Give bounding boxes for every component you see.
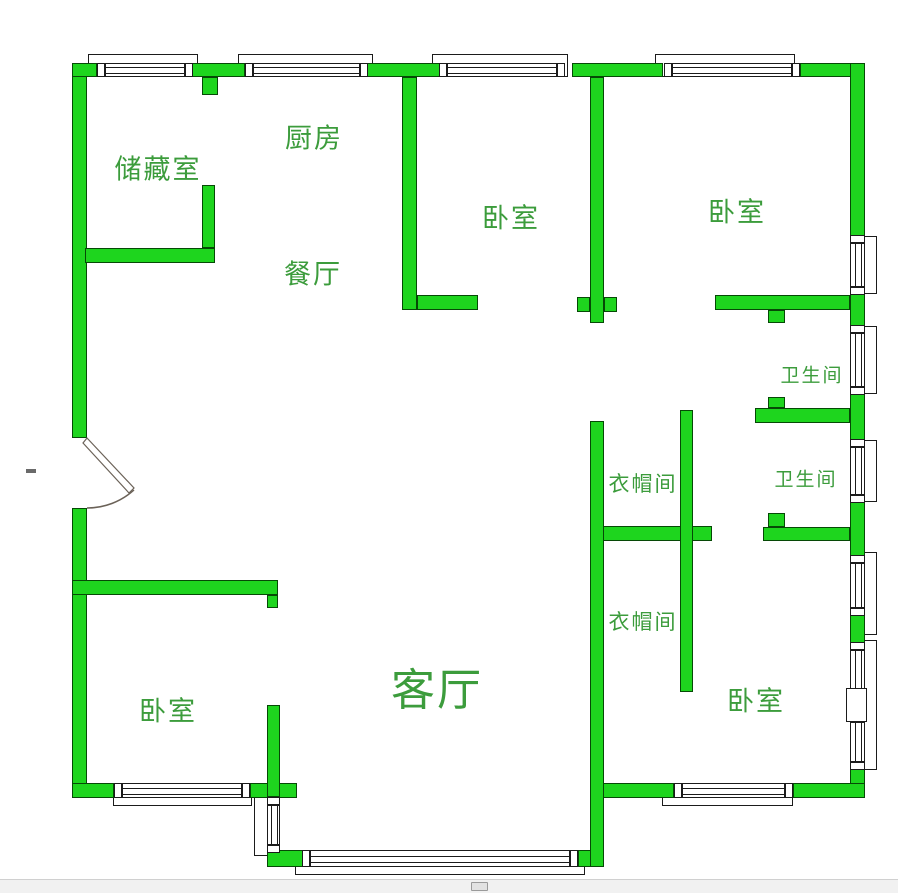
room-label-closet-lower: 衣帽间	[609, 606, 678, 636]
window	[850, 447, 865, 495]
entry-door	[0, 0, 898, 893]
window-jamb	[785, 783, 793, 798]
window	[850, 243, 865, 287]
window-jamb	[850, 325, 865, 333]
wall	[202, 185, 215, 248]
room-label-dining-room: 餐厅	[284, 253, 342, 292]
window-jamb	[114, 783, 122, 798]
room-label-bathroom-lower: 卫生间	[774, 465, 837, 492]
wall	[793, 783, 865, 798]
wall	[850, 495, 865, 563]
wall	[85, 248, 215, 263]
window	[850, 563, 865, 608]
room-label-bathroom-upper: 卫生间	[780, 361, 843, 388]
wall	[267, 705, 280, 797]
window	[447, 63, 557, 77]
window-jamb	[439, 63, 447, 77]
wall	[202, 77, 218, 95]
window	[267, 805, 280, 845]
wall	[604, 297, 617, 312]
window-frame	[864, 326, 877, 394]
window-jamb	[850, 762, 865, 770]
wall	[72, 580, 278, 595]
wall	[72, 783, 114, 798]
entry-door-leaf	[83, 438, 134, 493]
window-glazing	[683, 788, 784, 795]
window-jamb	[302, 850, 310, 867]
entry-door-swing-arc	[87, 490, 134, 508]
wall	[72, 508, 87, 798]
room-label-bedroom-northeast: 卧室	[708, 191, 766, 230]
wall	[367, 63, 440, 77]
wall	[402, 77, 417, 310]
window-glazing	[254, 67, 359, 74]
window	[105, 63, 185, 77]
window-glazing	[855, 651, 862, 689]
wall	[850, 387, 865, 447]
wall	[72, 63, 97, 77]
scrollbar-thumb[interactable]	[471, 882, 488, 891]
window-jamb	[850, 555, 865, 563]
window-jamb	[792, 63, 800, 77]
window	[672, 63, 792, 77]
wall	[768, 310, 785, 323]
window-glazing	[448, 67, 556, 74]
wall	[590, 421, 604, 867]
wall	[755, 408, 850, 423]
window-frame	[864, 440, 877, 502]
window-glazing	[855, 723, 862, 761]
window-frame	[864, 552, 877, 635]
window-frame	[864, 236, 877, 294]
window-jamb	[850, 387, 865, 395]
room-label-closet-upper: 衣帽间	[609, 468, 678, 498]
stray-mark	[26, 469, 36, 473]
room-label-bedroom-north: 卧室	[482, 197, 540, 236]
window-jamb	[267, 845, 280, 853]
window-glazing	[271, 806, 278, 844]
window-jamb	[97, 63, 105, 77]
window-jamb	[267, 797, 280, 805]
window	[310, 850, 570, 867]
room-label-living-room: 客厅	[391, 654, 483, 718]
window-glazing	[855, 244, 862, 286]
wall-niche-box	[846, 688, 867, 722]
window-jamb	[850, 495, 865, 503]
window-glazing	[855, 334, 862, 386]
window	[850, 650, 865, 690]
window-jamb	[850, 439, 865, 447]
window-glazing	[123, 788, 241, 795]
window-glazing	[673, 67, 791, 74]
window	[682, 783, 785, 798]
wall	[590, 77, 604, 323]
window-glazing	[106, 67, 184, 74]
window	[850, 722, 865, 762]
wall	[267, 595, 278, 608]
window-jamb	[360, 63, 368, 77]
window	[253, 63, 360, 77]
wall	[850, 63, 865, 243]
window-jamb	[570, 850, 578, 867]
wall	[763, 527, 850, 541]
window-jamb	[245, 63, 253, 77]
window-glazing	[855, 448, 862, 494]
room-label-bedroom-southwest: 卧室	[139, 690, 197, 729]
wall	[590, 526, 712, 541]
window-jamb	[850, 235, 865, 243]
window-jamb	[185, 63, 193, 77]
wall	[417, 295, 478, 310]
wall	[768, 397, 785, 408]
wall	[680, 410, 693, 692]
wall	[577, 297, 590, 312]
wall	[715, 295, 850, 310]
window	[122, 783, 242, 798]
room-label-bedroom-southeast: 卧室	[727, 680, 785, 719]
window-jamb	[242, 783, 250, 798]
window	[850, 333, 865, 387]
horizontal-scrollbar-track[interactable]	[0, 879, 898, 893]
window-jamb	[664, 63, 672, 77]
wall	[768, 513, 785, 527]
floorplan-canvas: 储藏室厨房餐厅卧室卧室卫生间卫生间衣帽间衣帽间卧室客厅卧室	[0, 0, 898, 893]
room-label-kitchen: 厨房	[285, 117, 343, 156]
window-jamb	[557, 63, 565, 77]
wall	[572, 63, 663, 77]
window-jamb	[850, 287, 865, 295]
window-glazing	[311, 856, 569, 863]
wall	[192, 63, 245, 77]
window-jamb	[850, 642, 865, 650]
room-label-storage-room: 储藏室	[115, 148, 202, 187]
window-jamb	[674, 783, 682, 798]
window-glazing	[855, 564, 862, 607]
window-jamb	[850, 608, 865, 616]
